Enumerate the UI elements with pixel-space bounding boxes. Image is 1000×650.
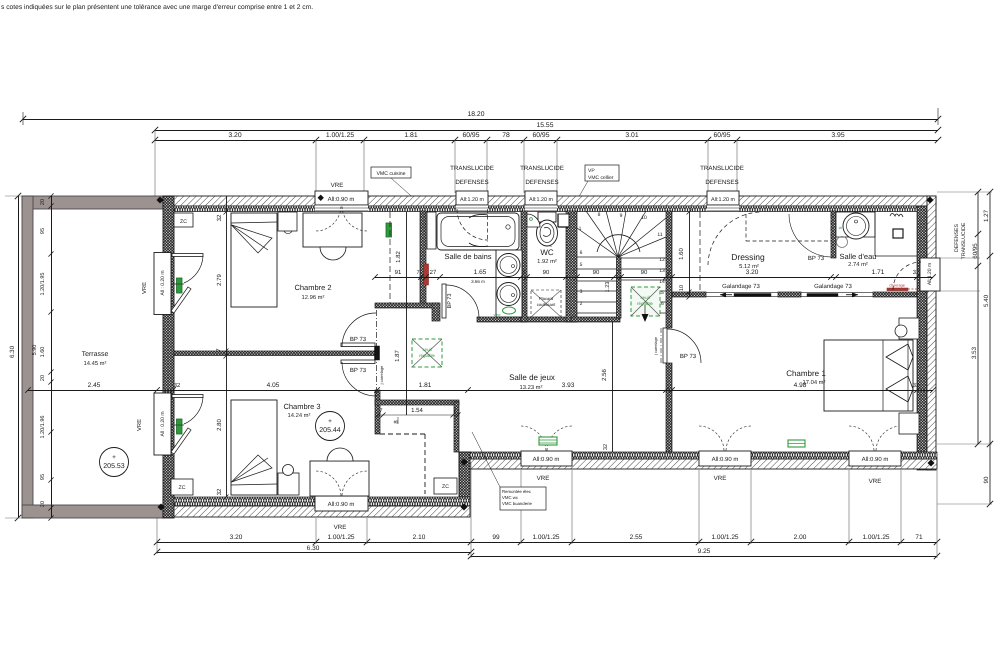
svg-text:10: 10 xyxy=(679,285,685,291)
svg-text:Dressing: Dressing xyxy=(731,252,765,262)
svg-text:6.30: 6.30 xyxy=(307,545,320,552)
svg-text:60/95: 60/95 xyxy=(532,132,549,139)
svg-text:All:0.90 m: All:0.90 m xyxy=(533,456,560,463)
svg-text:2.55: 2.55 xyxy=(630,534,643,541)
svg-text:+: + xyxy=(112,454,116,461)
svg-text:3.20: 3.20 xyxy=(746,269,759,276)
svg-text:1.82: 1.82 xyxy=(395,251,402,263)
svg-text:78: 78 xyxy=(502,132,510,139)
svg-text:+: + xyxy=(328,418,332,425)
svg-text:12: 12 xyxy=(659,257,665,263)
svg-text:BP 73: BP 73 xyxy=(447,294,453,309)
svg-text:2.45: 2.45 xyxy=(88,382,101,389)
svg-text:DEFENSES: DEFENSES xyxy=(705,179,738,186)
svg-text:32: 32 xyxy=(913,269,920,276)
svg-text:Salle de bains: Salle de bains xyxy=(444,252,491,261)
svg-text:90: 90 xyxy=(641,269,648,276)
svg-text:WC: WC xyxy=(540,248,554,257)
svg-text:TRANSLUCIDE: TRANSLUCIDE xyxy=(450,165,494,172)
svg-text:2.74 m²: 2.74 m² xyxy=(848,261,868,268)
svg-text:7: 7 xyxy=(522,270,525,276)
svg-text:Salle de jeux: Salle de jeux xyxy=(509,373,555,382)
svg-text:VMC cuisine: VMC cuisine xyxy=(376,171,405,177)
svg-text:14.45 m²: 14.45 m² xyxy=(84,360,107,367)
svg-text:seuil: seuil xyxy=(640,295,649,300)
svg-text:BP 73: BP 73 xyxy=(350,336,367,343)
svg-text:5.90: 5.90 xyxy=(32,345,38,356)
svg-text:Placard: Placard xyxy=(539,296,554,301)
svg-text:3.95: 3.95 xyxy=(831,132,844,139)
svg-text:11: 11 xyxy=(657,232,662,238)
svg-text:3.20: 3.20 xyxy=(228,132,241,139)
svg-text:205.44: 205.44 xyxy=(319,427,341,434)
svg-text:1: 1 xyxy=(579,226,582,232)
svg-text:3.66 m: 3.66 m xyxy=(471,279,485,284)
svg-text:32: 32 xyxy=(216,214,223,221)
svg-text:DEFENSES: DEFENSES xyxy=(525,179,558,186)
svg-text:9: 9 xyxy=(620,213,623,219)
svg-text:VRE: VRE xyxy=(334,524,347,531)
svg-text:Chambre 2: Chambre 2 xyxy=(294,283,331,292)
svg-text:All : 0.20 m: All : 0.20 m xyxy=(160,411,166,436)
svg-text:60/95: 60/95 xyxy=(462,132,479,139)
svg-text:1.60: 1.60 xyxy=(40,347,46,358)
svg-text:95: 95 xyxy=(40,474,46,480)
svg-text:3.93: 3.93 xyxy=(562,382,575,389)
svg-text:TRANSLUCIDE: TRANSLUCIDE xyxy=(700,165,744,172)
svg-text:2: 2 xyxy=(580,301,583,307)
svg-text:1.27: 1.27 xyxy=(983,209,990,222)
svg-text:6.30: 6.30 xyxy=(9,345,16,358)
svg-text:Galandage 73: Galandage 73 xyxy=(722,283,760,290)
svg-text:1.65: 1.65 xyxy=(474,269,487,276)
svg-text:j carrelage: j carrelage xyxy=(379,365,384,385)
svg-text:205.53: 205.53 xyxy=(103,463,125,470)
svg-text:BP 73: BP 73 xyxy=(350,367,367,374)
svg-text:4.05: 4.05 xyxy=(267,382,280,389)
svg-text:90: 90 xyxy=(593,269,600,276)
svg-text:VRE: VRE xyxy=(537,475,550,482)
svg-text:1.00/1.25: 1.00/1.25 xyxy=(327,534,354,541)
svg-text:1.00/1.25: 1.00/1.25 xyxy=(711,534,738,541)
svg-text:VP: VP xyxy=(588,168,595,174)
svg-text:All:1.20 m: All:1.20 m xyxy=(529,197,553,203)
svg-text:TRANSLUCIDE: TRANSLUCIDE xyxy=(520,165,564,172)
svg-text:s cotes indiquées sur le plan: s cotes indiquées sur le plan présentent… xyxy=(1,4,313,11)
svg-text:2.79: 2.79 xyxy=(216,274,223,286)
svg-text:12.96 m²: 12.96 m² xyxy=(302,294,325,301)
svg-text:1.71: 1.71 xyxy=(872,269,885,276)
svg-text:VRE: VRE xyxy=(142,282,148,294)
svg-text:VRE: VRE xyxy=(714,475,727,482)
svg-text:20: 20 xyxy=(40,501,46,507)
svg-text:All:1.20 m: All:1.20 m xyxy=(927,263,933,285)
svg-text:1.81: 1.81 xyxy=(419,382,432,389)
svg-text:1.81: 1.81 xyxy=(404,132,417,139)
svg-text:Salle d'eau: Salle d'eau xyxy=(840,252,877,261)
svg-text:90: 90 xyxy=(543,269,550,276)
svg-text:32: 32 xyxy=(174,382,181,389)
svg-text:1.20/1.96: 1.20/1.96 xyxy=(40,416,46,439)
svg-text:7: 7 xyxy=(379,408,382,414)
svg-text:VMC cellier: VMC cellier xyxy=(588,175,614,181)
svg-text:BP 73: BP 73 xyxy=(808,255,825,262)
svg-text:VRE: VRE xyxy=(137,419,143,431)
svg-text:90: 90 xyxy=(983,476,990,483)
svg-text:Chambre 1: Chambre 1 xyxy=(786,369,826,378)
svg-text:1.92 m²: 1.92 m² xyxy=(537,258,557,265)
svg-text:1.00/1.25: 1.00/1.25 xyxy=(532,534,559,541)
svg-text:ZC: ZC xyxy=(180,219,187,225)
svg-text:7: 7 xyxy=(616,270,619,276)
svg-text:14.24 m²: 14.24 m² xyxy=(288,412,311,419)
svg-text:10: 10 xyxy=(641,215,647,221)
svg-text:All : 0.20 m: All : 0.20 m xyxy=(160,270,166,295)
svg-text:15.55: 15.55 xyxy=(536,122,553,129)
svg-text:3.20: 3.20 xyxy=(230,534,243,541)
svg-text:7: 7 xyxy=(667,270,670,276)
svg-text:Chambre 3: Chambre 3 xyxy=(283,402,320,411)
svg-text:2.10: 2.10 xyxy=(413,534,426,541)
svg-text:13: 13 xyxy=(659,268,665,274)
svg-text:BP 73: BP 73 xyxy=(680,353,697,360)
svg-text:TRANSLUCIDE: TRANSLUCIDE xyxy=(961,222,967,259)
svg-text:7: 7 xyxy=(453,408,456,414)
svg-text:5: 5 xyxy=(580,262,583,268)
svg-text:DEFENSES: DEFENSES xyxy=(954,223,960,252)
svg-text:7: 7 xyxy=(416,270,419,276)
svg-text:S: S xyxy=(838,226,843,229)
svg-text:All:1.20 m: All:1.20 m xyxy=(460,197,484,203)
svg-text:1.00/1.25: 1.00/1.25 xyxy=(862,534,889,541)
svg-text:1.23: 1.23 xyxy=(605,282,611,293)
svg-text:VRE: VRE xyxy=(331,182,344,189)
svg-text:1.20/1.95: 1.20/1.95 xyxy=(40,273,46,296)
svg-text:13.23 m²: 13.23 m² xyxy=(520,384,543,391)
svg-text:2.80: 2.80 xyxy=(216,419,223,431)
svg-text:All:0.90 m: All:0.90 m xyxy=(328,196,355,203)
svg-text:chevrage: chevrage xyxy=(889,284,905,288)
svg-text:5.40: 5.40 xyxy=(983,294,990,307)
svg-text:VMC buanderie: VMC buanderie xyxy=(502,501,532,506)
svg-text:3.01: 3.01 xyxy=(625,132,638,139)
svg-text:4.98: 4.98 xyxy=(794,382,807,389)
svg-text:ZC: ZC xyxy=(442,484,449,490)
svg-text:20: 20 xyxy=(40,375,46,381)
svg-text:All:0.90 m: All:0.90 m xyxy=(862,456,889,463)
svg-text:95: 95 xyxy=(40,228,46,234)
svg-text:91: 91 xyxy=(395,269,402,276)
svg-text:VMC wc: VMC wc xyxy=(502,495,519,500)
svg-text:71: 71 xyxy=(915,534,923,541)
svg-text:All:0.90 m: All:0.90 m xyxy=(328,501,355,508)
svg-text:3.53: 3.53 xyxy=(971,346,978,359)
svg-text:j carrelage: j carrelage xyxy=(654,337,658,356)
svg-text:2.56: 2.56 xyxy=(601,369,608,381)
svg-text:9.25: 9.25 xyxy=(698,548,711,555)
svg-text:vmc: vmc xyxy=(494,313,501,317)
svg-text:coulissant: coulissant xyxy=(537,302,556,307)
svg-text:2.00: 2.00 xyxy=(794,534,807,541)
svg-text:32: 32 xyxy=(913,382,920,389)
svg-text:Galandage 73: Galandage 73 xyxy=(814,283,852,290)
svg-text:32: 32 xyxy=(216,488,223,495)
svg-text:All:1.20 m: All:1.20 m xyxy=(711,197,735,203)
svg-text:DEFENSES: DEFENSES xyxy=(455,179,488,186)
svg-text:99: 99 xyxy=(492,534,500,541)
svg-text:18.20: 18.20 xyxy=(467,111,484,118)
svg-text:VRE: VRE xyxy=(869,478,882,485)
svg-text:27: 27 xyxy=(430,269,437,276)
svg-text:Terrasse: Terrasse xyxy=(82,351,109,358)
svg-text:32: 32 xyxy=(603,444,609,450)
svg-text:1.54: 1.54 xyxy=(411,407,423,414)
svg-text:7: 7 xyxy=(571,270,574,276)
svg-text:seuil: seuil xyxy=(422,347,431,352)
svg-text:1.60: 1.60 xyxy=(678,248,685,260)
svg-text:3: 3 xyxy=(580,289,583,295)
svg-text:14: 14 xyxy=(659,279,665,285)
svg-text:1.87: 1.87 xyxy=(394,350,401,362)
svg-text:60/95: 60/95 xyxy=(713,132,730,139)
svg-text:réglable: réglable xyxy=(419,353,436,358)
svg-text:1.00/1.25: 1.00/1.25 xyxy=(326,132,355,139)
svg-text:6: 6 xyxy=(580,250,583,256)
svg-text:20: 20 xyxy=(40,199,46,205)
svg-text:Remontée élec: Remontée élec xyxy=(502,489,532,494)
svg-text:ZC: ZC xyxy=(179,485,186,491)
svg-text:60/95: 60/95 xyxy=(972,243,979,259)
svg-text:All:0.90 m: All:0.90 m xyxy=(712,456,739,463)
svg-text:8: 8 xyxy=(598,212,601,218)
svg-text:7: 7 xyxy=(216,348,222,351)
